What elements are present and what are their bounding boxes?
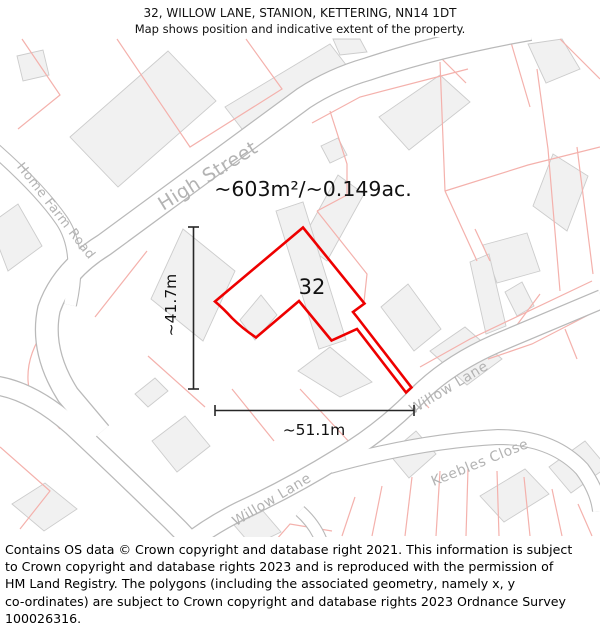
dimension-height-label: ~41.7m bbox=[162, 274, 180, 337]
footer-line: 100026316. bbox=[5, 610, 595, 627]
footer-line: to Crown copyright and database rights 2… bbox=[5, 558, 595, 575]
copyright-footer: Contains OS data © Crown copyright and d… bbox=[0, 537, 600, 627]
property-number-label: 32 bbox=[299, 275, 326, 299]
dimension-width-label: ~51.1m bbox=[283, 421, 346, 439]
footer-line: Contains OS data © Crown copyright and d… bbox=[5, 541, 595, 558]
page-title: 32, WILLOW LANE, STANION, KETTERING, NN1… bbox=[0, 5, 600, 21]
page-subtitle: Map shows position and indicative extent… bbox=[0, 21, 600, 37]
area-label: ~603m²/~0.149ac. bbox=[214, 177, 412, 201]
footer-line: co-ordinates) are subject to Crown copyr… bbox=[5, 593, 595, 610]
street-label-high-street: High Street bbox=[154, 137, 261, 216]
map-header: 32, WILLOW LANE, STANION, KETTERING, NN1… bbox=[0, 0, 600, 37]
map-canvas: High Street Home Farm Road Willow Lane W… bbox=[0, 37, 600, 537]
footer-line: HM Land Registry. The polygons (includin… bbox=[5, 575, 595, 592]
